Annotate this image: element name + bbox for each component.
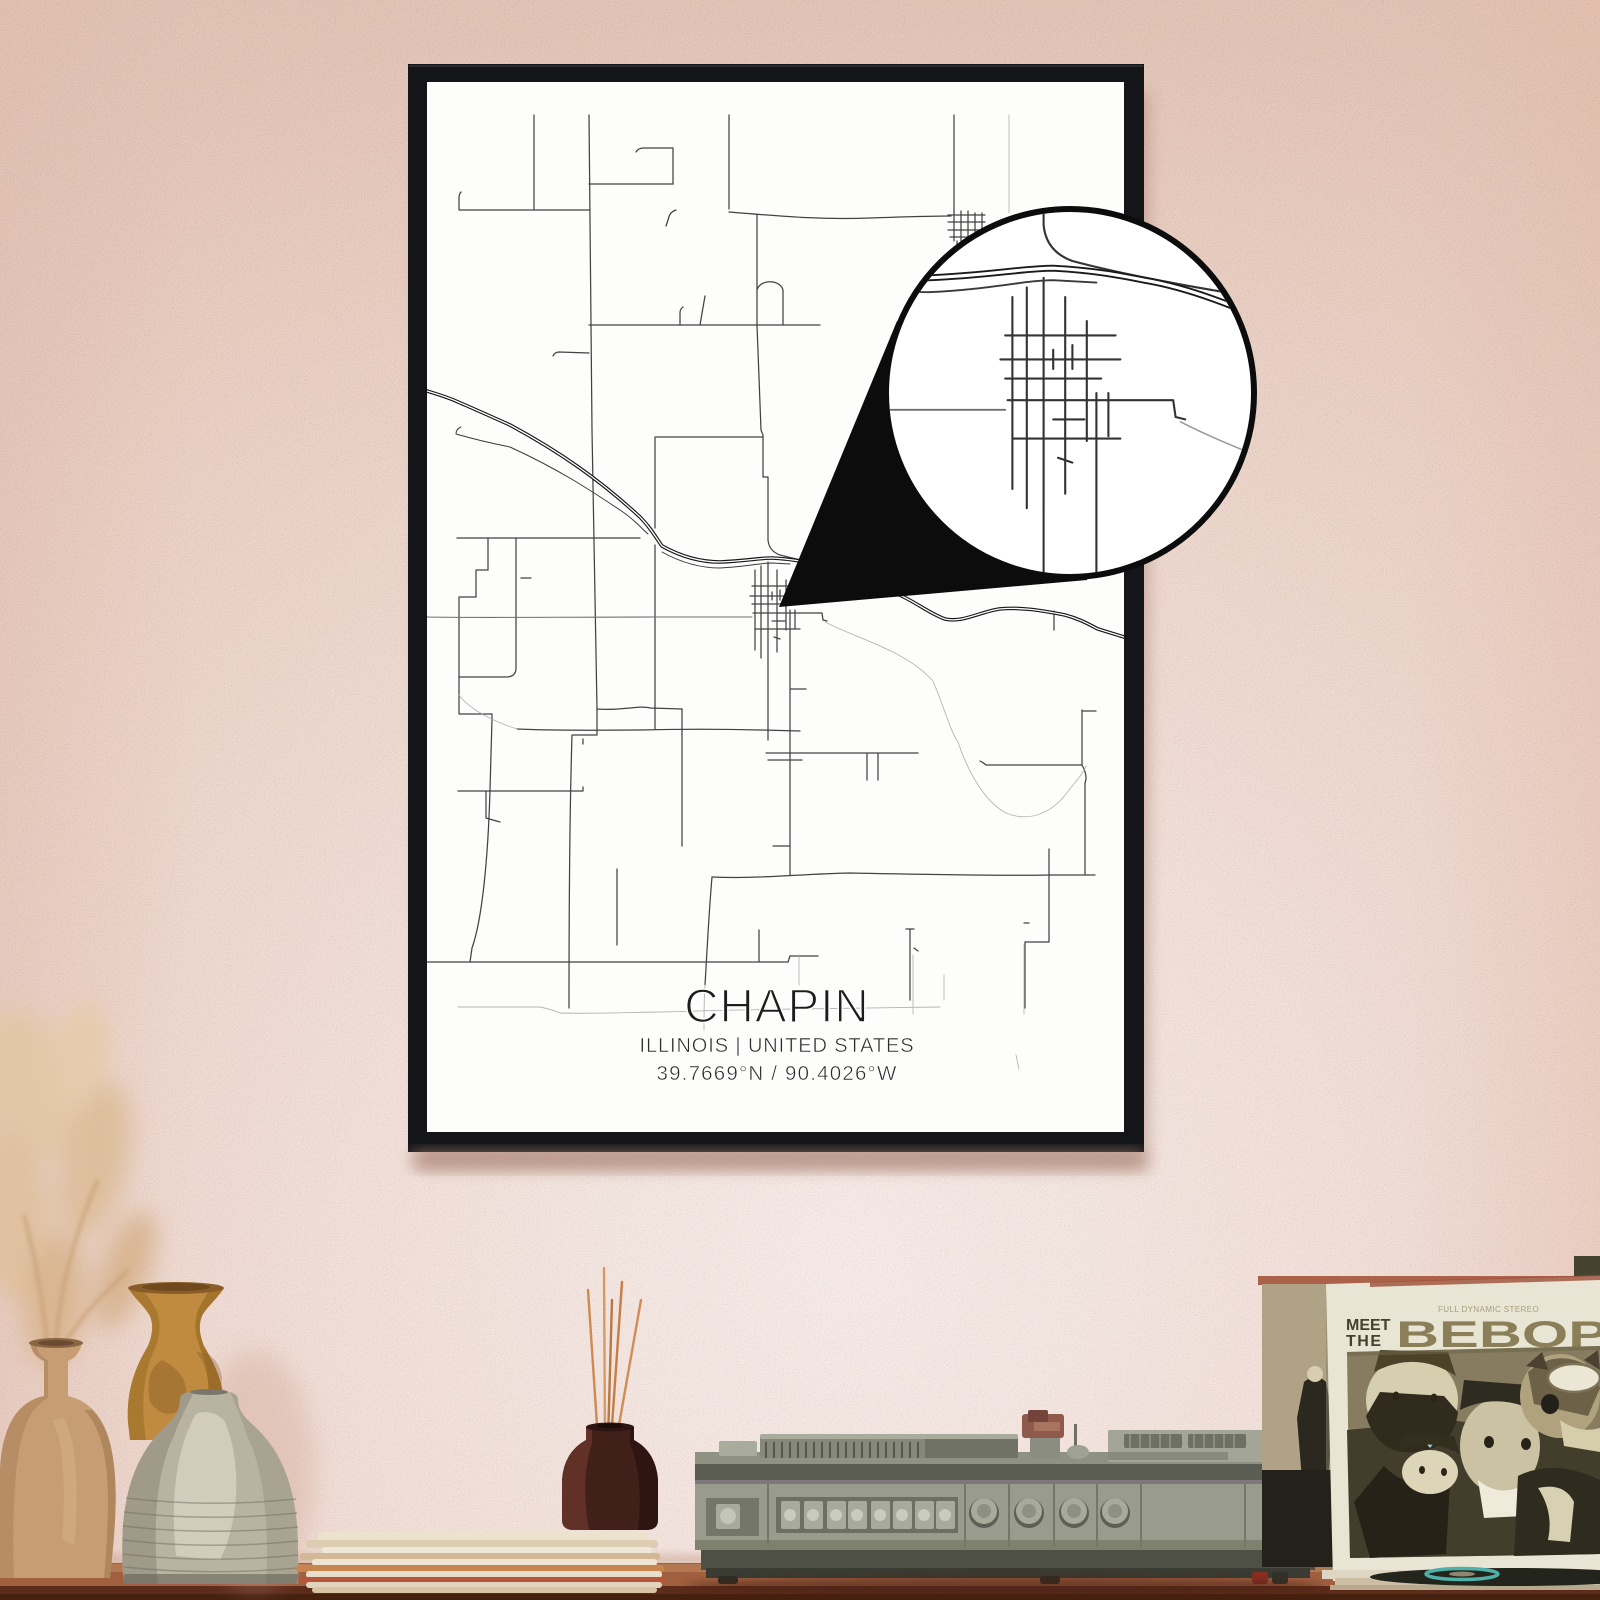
svg-text:FULL DYNAMIC STEREO: FULL DYNAMIC STEREO bbox=[1438, 1305, 1539, 1314]
svg-text:ILLINOIS | UNITED STATES: ILLINOIS | UNITED STATES bbox=[640, 1035, 915, 1057]
svg-text:39.7669°N / 90.4026°W: 39.7669°N / 90.4026°W bbox=[656, 1062, 897, 1085]
svg-text:CHAPIN: CHAPIN bbox=[684, 980, 869, 1033]
svg-text:MEET: MEET bbox=[1346, 1317, 1391, 1334]
svg-text:THE: THE bbox=[1346, 1333, 1383, 1350]
